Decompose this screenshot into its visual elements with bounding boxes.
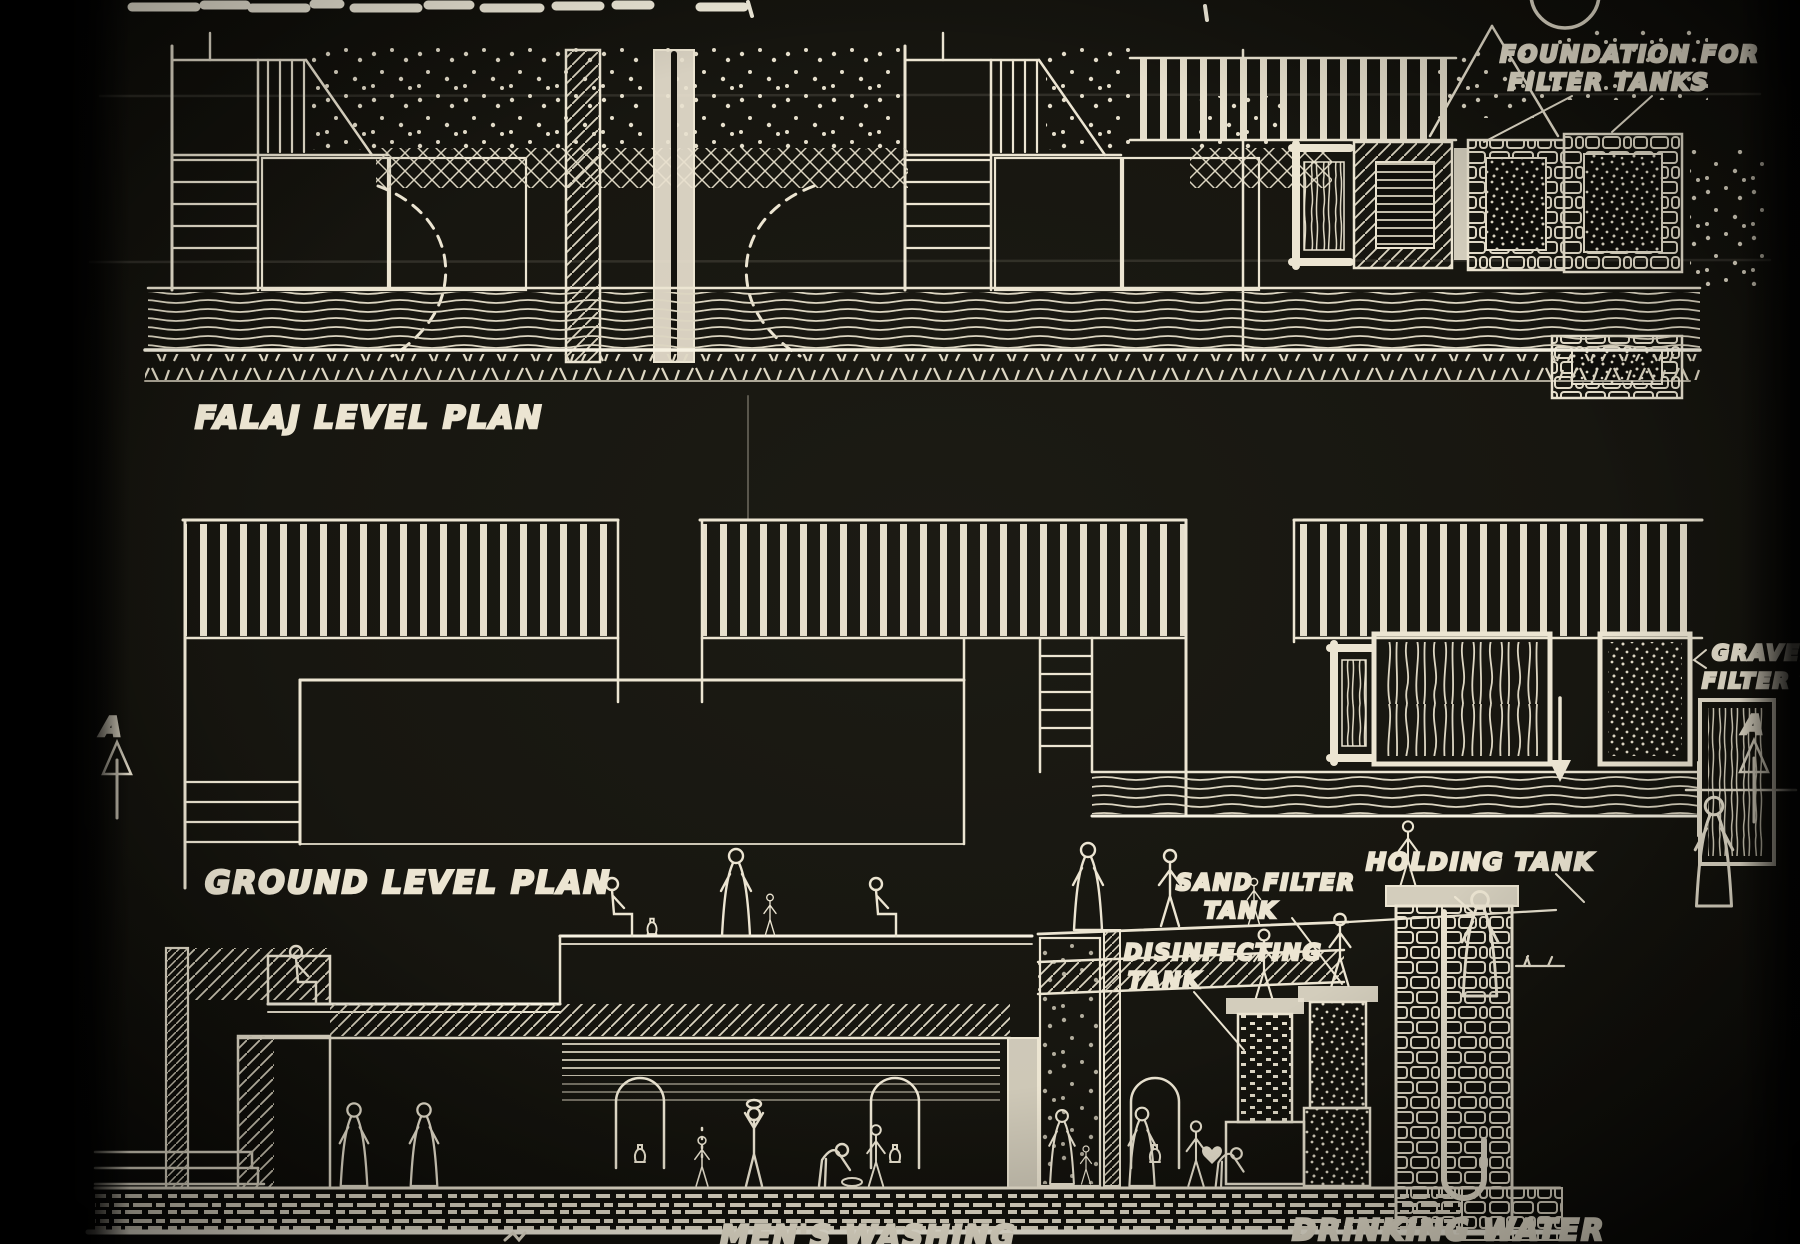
falaj-plan-title: FALAJ LEVEL PLAN <box>195 400 543 436</box>
ground-plan-panel: A A GRAVEL FILTER TA GROUND LEVEL PLAN <box>99 396 1800 901</box>
sand-filter-label-2: TANK <box>1204 899 1278 924</box>
basement-shadow-stripes <box>562 1042 1000 1102</box>
roof-stripe-bands <box>183 520 1702 638</box>
disinfecting-label-1: DISINFECTING <box>1124 941 1323 966</box>
holding-tank <box>1386 886 1518 1234</box>
crosshatch-band <box>376 148 1332 188</box>
section-marker-left: A <box>99 712 131 818</box>
svg-text:A: A <box>1741 710 1766 741</box>
sand-filter-label-1: SAND FILTER <box>1176 871 1356 896</box>
clipped-title-strokes <box>132 2 1207 20</box>
gravel-filter-label: GRAVEL FILTER TA <box>1702 641 1800 693</box>
falaj-improvement-drawing-slide: FALAJ LEVEL PLAN FOUNDATION FOR FILTER T… <box>0 0 1800 1244</box>
left-pillar <box>238 1036 330 1188</box>
svg-text:FILTER TA: FILTER TA <box>1702 669 1800 693</box>
svg-text:GRAVEL: GRAVEL <box>1712 641 1800 665</box>
svg-text:FILTER TANKS: FILTER TANKS <box>1508 70 1710 96</box>
ground-hatch-band <box>145 354 1700 381</box>
right-ground-line <box>1516 956 1564 966</box>
drinking-water-label: DRINKING WATER <box>1292 1213 1605 1244</box>
plan-water-band <box>1092 772 1700 816</box>
svg-text:A: A <box>99 712 124 743</box>
mens-washing-label: MEN'S WASHING <box>720 1219 1016 1244</box>
disinfecting-label-2: TANK <box>1128 969 1202 994</box>
disinfecting-tank <box>1202 998 1304 1184</box>
banded-rooms-mid <box>1040 638 1092 772</box>
drawing-number-circle <box>1531 0 1599 28</box>
falaj-plan-panel: FALAJ LEVEL PLAN FOUNDATION FOR FILTER T… <box>145 26 1770 436</box>
left-hatched-wall <box>166 948 188 1188</box>
hatched-pillar <box>1104 930 1120 1186</box>
holding-tank-label: HOLDING TANK <box>1366 848 1595 876</box>
banded-rooms-left <box>187 782 300 842</box>
svg-text:FOUNDATION FOR: FOUNDATION FOR <box>1500 42 1760 68</box>
falaj-drawing-canvas: FALAJ LEVEL PLAN FOUNDATION FOR FILTER T… <box>0 0 1800 1244</box>
ground-plan-title: GROUND LEVEL PLAN <box>205 865 611 901</box>
sand-filter-tank <box>1298 986 1378 1186</box>
falaj-water-band <box>145 288 1700 350</box>
